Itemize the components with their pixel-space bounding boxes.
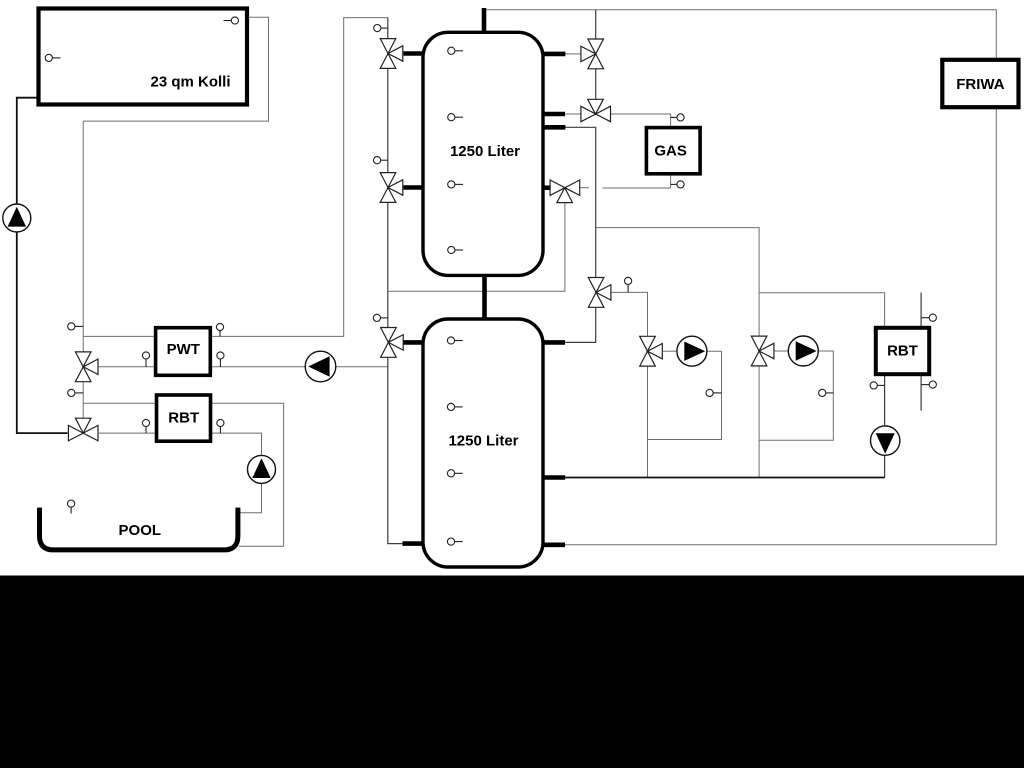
svg-text:POOL: POOL [119,522,162,539]
svg-text:RBT: RBT [887,343,918,360]
svg-text:1250 Liter: 1250 Liter [448,433,518,450]
svg-text:23 qm Kolli: 23 qm Kolli [150,74,230,91]
svg-text:RBT: RBT [168,410,199,427]
svg-text:FRIWA: FRIWA [956,76,1004,93]
svg-text:GAS: GAS [654,143,687,160]
svg-text:PWT: PWT [167,341,200,358]
svg-text:1250 Liter: 1250 Liter [450,143,520,160]
